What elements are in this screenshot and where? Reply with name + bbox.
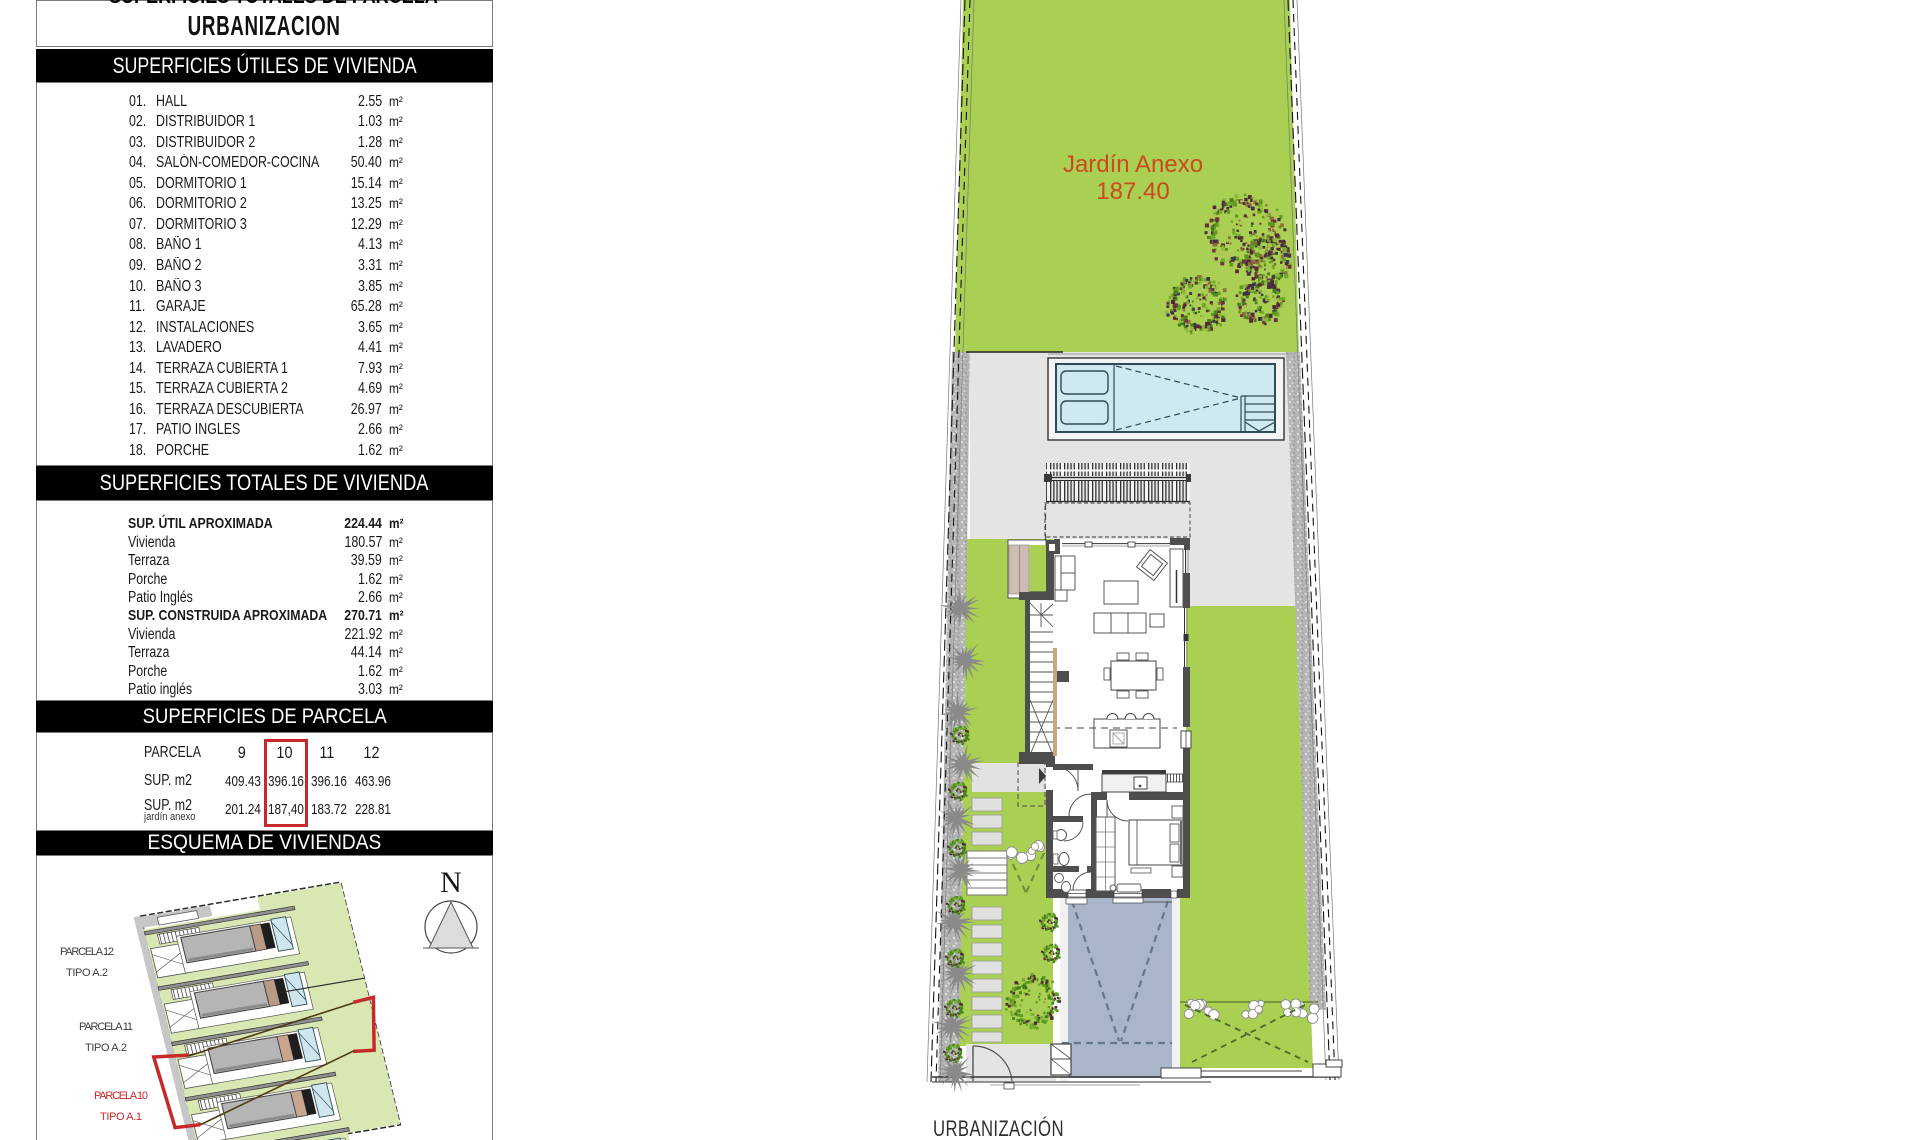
svg-text:PARCELA 11: PARCELA 11 [79, 1021, 133, 1033]
svg-text:N: N [440, 866, 462, 899]
svg-text:TIPO A.1: TIPO A.1 [100, 1111, 142, 1123]
svg-text:PARCELA 10: PARCELA 10 [94, 1090, 148, 1102]
svg-text:187.40: 187.40 [1096, 178, 1169, 205]
svg-text:TIPO A.2: TIPO A.2 [85, 1042, 127, 1054]
svg-text:Jardín Anexo: Jardín Anexo [1063, 151, 1203, 178]
svg-text:PARCELA 12: PARCELA 12 [60, 946, 114, 958]
svg-text:TIPO A.2: TIPO A.2 [66, 967, 108, 979]
